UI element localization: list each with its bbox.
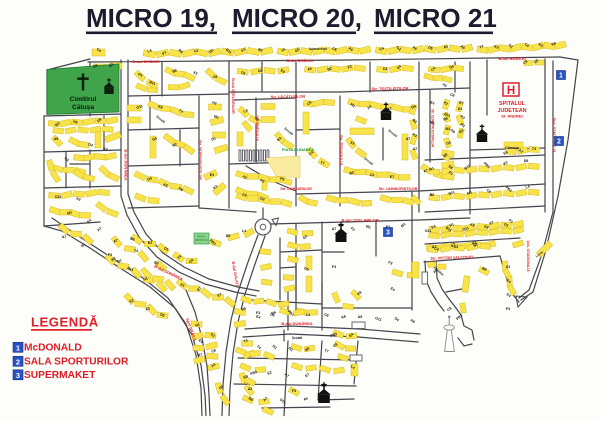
svg-text:Cătușa: Cătușa xyxy=(72,104,94,111)
svg-text:D1: D1 xyxy=(458,107,463,111)
svg-text:A7: A7 xyxy=(198,353,203,357)
svg-text:H: H xyxy=(507,85,515,97)
svg-text:F3: F3 xyxy=(108,253,112,257)
svg-text:O11: O11 xyxy=(425,229,432,233)
svg-text:MICRO 20,: MICRO 20, xyxy=(232,3,362,33)
svg-text:F3: F3 xyxy=(506,307,510,311)
svg-text:A7: A7 xyxy=(406,137,411,141)
svg-text:D9: D9 xyxy=(524,159,529,163)
svg-text:3: 3 xyxy=(386,230,390,237)
svg-text:X3: X3 xyxy=(506,265,510,269)
svg-text:1: 1 xyxy=(16,344,20,353)
svg-text:Str. TECUCIULUI: Str. TECUCIULUI xyxy=(339,135,343,165)
svg-text:Școală: Școală xyxy=(292,336,303,340)
svg-text:3: 3 xyxy=(16,371,20,380)
svg-text:T4: T4 xyxy=(532,147,536,151)
svg-text:L4: L4 xyxy=(242,229,246,233)
svg-text:B-dul OTELARILOR: B-dul OTELARILOR xyxy=(341,218,378,223)
svg-text:B-dul BRĂILEI: B-dul BRĂILEI xyxy=(498,56,525,61)
svg-text:F3: F3 xyxy=(332,265,336,269)
svg-text:E2: E2 xyxy=(148,241,152,245)
svg-text:F3: F3 xyxy=(292,389,296,393)
svg-text:Str. SIDERURGIȘTILOR: Str. SIDERURGIȘTILOR xyxy=(198,140,202,180)
svg-text:McDONALD: McDONALD xyxy=(24,343,82,354)
svg-text:PIATA: PIATA xyxy=(198,235,206,239)
svg-text:2: 2 xyxy=(16,358,20,367)
svg-text:O11: O11 xyxy=(55,195,62,199)
svg-text:B-dul DUNĂREA: B-dul DUNĂREA xyxy=(281,321,312,326)
svg-text:D5: D5 xyxy=(226,234,231,238)
svg-text:A7: A7 xyxy=(62,235,67,239)
svg-text:Str. LĂCĂTUȘILOR: Str. LĂCĂTUȘILOR xyxy=(271,94,306,100)
svg-text:F3: F3 xyxy=(256,311,260,315)
svg-text:Str. COBZARILOR: Str. COBZARILOR xyxy=(280,187,312,191)
svg-text:B-dul DUNĂREA: B-dul DUNĂREA xyxy=(124,149,129,180)
svg-text:2: 2 xyxy=(557,139,561,146)
svg-text:Str. CONSTRUCTORILOR: Str. CONSTRUCTORILOR xyxy=(431,109,435,148)
svg-text:C4: C4 xyxy=(370,173,375,177)
svg-text:B-dul BRĂILEI: B-dul BRĂILEI xyxy=(132,59,159,64)
svg-text:Autoservice: Autoservice xyxy=(309,47,327,51)
svg-text:A7: A7 xyxy=(413,147,418,151)
svg-text:A5: A5 xyxy=(54,137,59,141)
svg-text:C4: C4 xyxy=(194,49,199,53)
svg-text:Str. TEXTILIȘTILOR: Str. TEXTILIȘTILOR xyxy=(371,86,408,92)
svg-text:B6: B6 xyxy=(430,193,435,197)
svg-text:Str. LAMINORIȘTILOR: Str. LAMINORIȘTILOR xyxy=(379,187,418,191)
svg-text:1: 1 xyxy=(559,73,563,80)
svg-text:Șos. STADIONULUI: Șos. STADIONULUI xyxy=(552,118,556,153)
svg-text:SALA SPORTURILOR: SALA SPORTURILOR xyxy=(24,357,129,368)
svg-text:Șos. STADIONULUI: Șos. STADIONULUI xyxy=(526,240,530,271)
svg-text:C4: C4 xyxy=(383,67,388,71)
svg-text:SPITALUL: SPITALUL xyxy=(499,101,526,107)
svg-text:MICRO 19,: MICRO 19, xyxy=(86,3,216,33)
svg-text:E2: E2 xyxy=(210,173,214,177)
svg-text:L4: L4 xyxy=(306,313,310,317)
svg-text:C8: C8 xyxy=(213,75,218,79)
svg-text:Sf. ANDREI: Sf. ANDREI xyxy=(501,114,522,119)
svg-text:B-dul BRĂILEI: B-dul BRĂILEI xyxy=(286,58,313,63)
svg-text:A5: A5 xyxy=(358,315,363,319)
svg-text:Cimitirul: Cimitirul xyxy=(70,96,97,103)
svg-text:A7: A7 xyxy=(332,227,337,231)
svg-text:B-dul OȚELARILOR: B-dul OȚELARILOR xyxy=(231,78,235,114)
svg-text:A3: A3 xyxy=(248,387,253,391)
svg-text:X3: X3 xyxy=(454,245,458,249)
svg-text:E7: E7 xyxy=(390,175,394,179)
svg-text:Cămine: Cămine xyxy=(505,146,519,150)
svg-text:MICRO 39: MICRO 39 xyxy=(195,238,208,242)
svg-text:LEGENDĂ: LEGENDĂ xyxy=(31,315,99,330)
svg-text:MICRO 21: MICRO 21 xyxy=(374,3,497,33)
svg-text:SUPERMAKET: SUPERMAKET xyxy=(24,370,96,381)
svg-text:C8: C8 xyxy=(258,69,263,73)
svg-text:T4: T4 xyxy=(134,249,138,253)
